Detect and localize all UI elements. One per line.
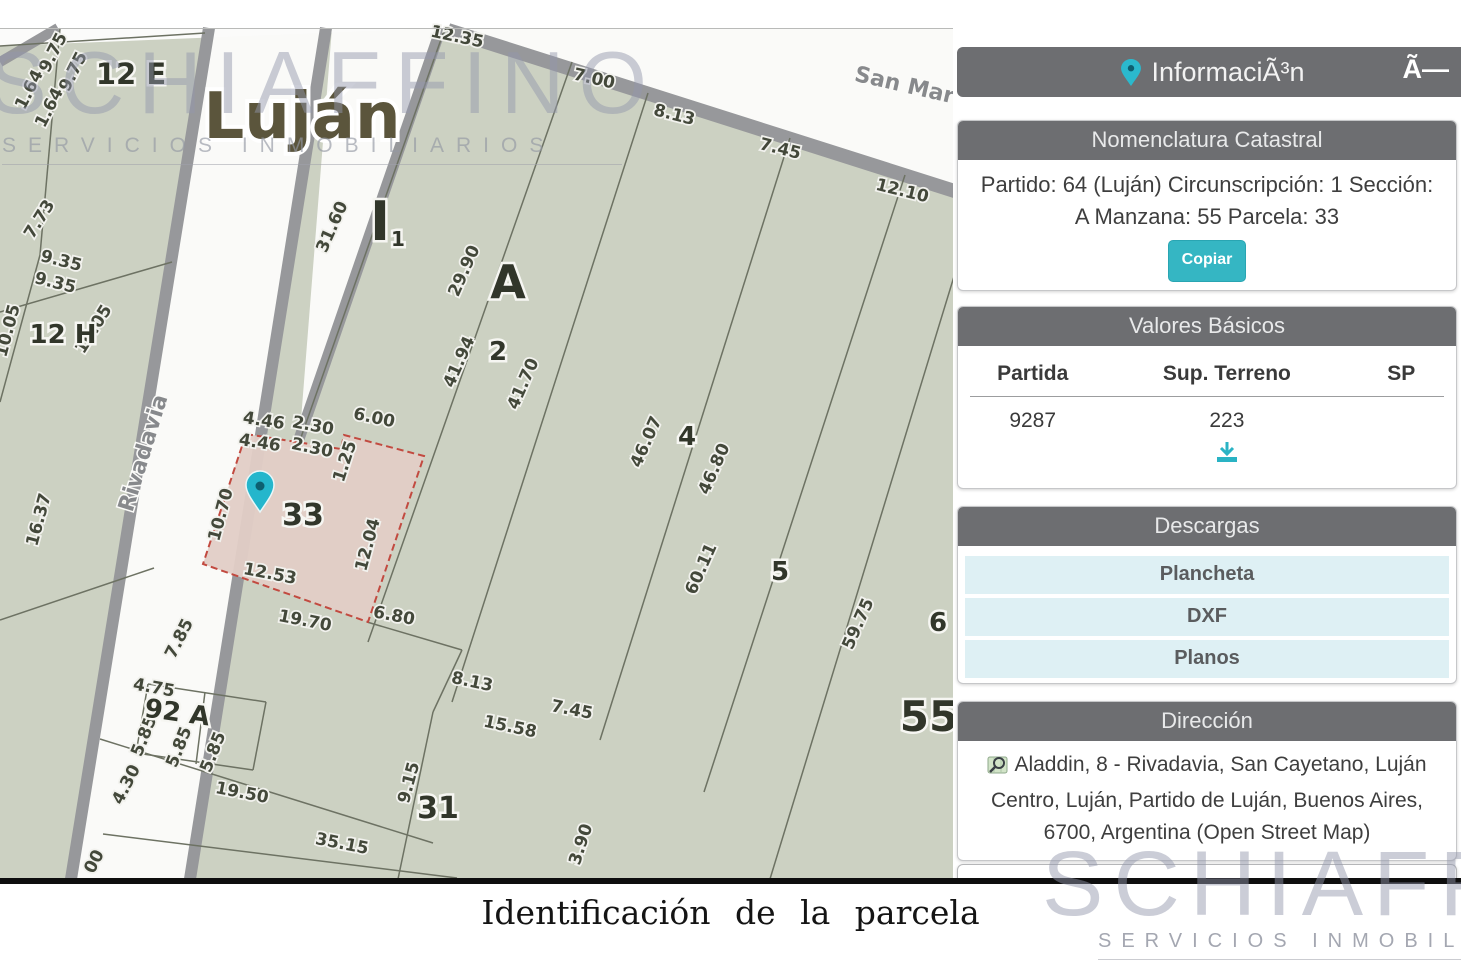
map-block-label: 4 xyxy=(678,422,696,452)
descargas-header: Descargas xyxy=(958,507,1456,546)
valores-section: Valores Básicos PartidaSup. TerrenoSP 92… xyxy=(957,306,1457,489)
figure-caption: Identificación de la parcela xyxy=(0,893,1461,932)
map-block-label: 12 H xyxy=(30,320,97,350)
map-block-label: 6 xyxy=(929,608,947,638)
valores-cell: 9287 xyxy=(958,397,1107,433)
valores-cell xyxy=(1346,397,1456,433)
copy-button[interactable]: Copiar xyxy=(1168,240,1247,282)
map-block-label: 33 xyxy=(282,498,324,533)
nomenclatura-line2: A Manzana: 55 Parcela: 33 xyxy=(958,201,1456,233)
download-link-planos[interactable]: Planos xyxy=(965,640,1449,678)
download-icon[interactable] xyxy=(1107,433,1346,468)
download-link-plancheta[interactable]: Plancheta xyxy=(965,556,1449,594)
map-block-label: 5 xyxy=(771,557,789,587)
descargas-section: Descargas PlanchetaDXFPlanos xyxy=(957,506,1457,684)
valores-column-header: Sup. Terreno xyxy=(1107,362,1346,386)
divider-rule xyxy=(0,878,1461,884)
map-block-label: 1 xyxy=(391,227,405,251)
map-block-label: 31 xyxy=(417,791,459,826)
map-block-label: A xyxy=(490,255,526,309)
valores-column-header: SP xyxy=(1346,362,1456,386)
cadastral-viewer: 12.357.008.137.4512.109.759.751.641.647.… xyxy=(0,0,1461,979)
map-block-label: I xyxy=(370,190,390,253)
valores-values-row: 9287223 xyxy=(958,397,1456,433)
panel-title: InformaciÃ³n xyxy=(1151,57,1304,88)
close-icon[interactable]: Ã— xyxy=(1403,54,1450,85)
watermark-subtitle-bottom: SERVICIOS INMOBILIARIOS xyxy=(1098,930,1461,960)
valores-header: Valores Básicos xyxy=(958,307,1456,346)
valores-column-headers: PartidaSup. TerrenoSP xyxy=(958,346,1456,386)
info-panel: InformaciÃ³n Ã— Nomenclatura Catastral P… xyxy=(953,28,1461,879)
panel-header: InformaciÃ³n Ã— xyxy=(957,47,1461,97)
nomenclatura-section: Nomenclatura Catastral Partido: 64 (Lujá… xyxy=(957,120,1457,291)
city-label: Luján xyxy=(203,80,400,154)
map-block-label: 2 xyxy=(489,337,507,367)
nomenclatura-header: Nomenclatura Catastral xyxy=(958,121,1456,160)
download-link-dxf[interactable]: DXF xyxy=(965,598,1449,636)
map-search-icon xyxy=(987,753,1008,785)
nomenclatura-line1: Partido: 64 (Luján) Circunscripción: 1 S… xyxy=(958,169,1456,201)
map-block-label: 12 E xyxy=(96,57,166,91)
direccion-text: Aladdin, 8 - Rivadavia, San Cayetano, Lu… xyxy=(991,753,1427,844)
direccion-section: Dirección Aladdin, 8 - Rivadavia, San Ca… xyxy=(957,701,1457,861)
valores-column-header: Partida xyxy=(958,362,1107,386)
direccion-header: Dirección xyxy=(958,702,1456,741)
map-block-label: 55 xyxy=(900,692,958,741)
descargas-list: PlanchetaDXFPlanos xyxy=(958,546,1456,678)
valores-cell: 223 xyxy=(1107,397,1346,433)
pin-icon xyxy=(1121,59,1141,86)
